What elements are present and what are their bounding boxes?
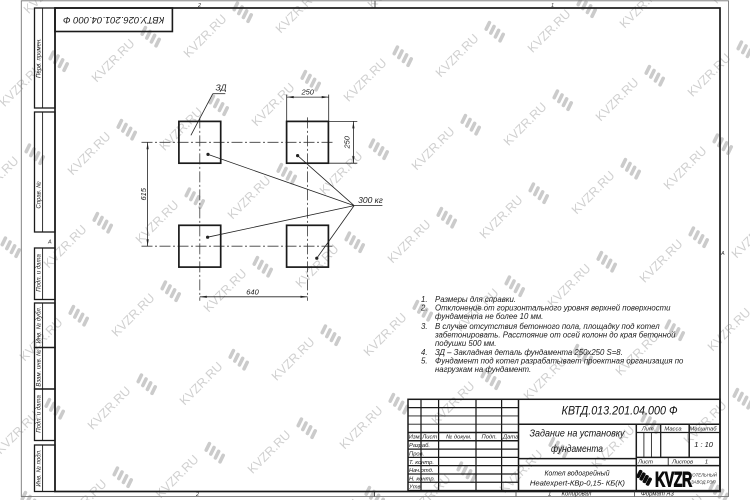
svg-text:Взам. инв. №: Взам. инв. № (36, 349, 43, 387)
svg-text:КВТД.013.201.04.000 Ф: КВТД.013.201.04.000 Ф (562, 403, 678, 417)
svg-text:Лист: Лист (637, 460, 653, 466)
svg-text:ЗД – Закладная деталь фундамен: ЗД – Закладная деталь фундамента 250х250… (435, 348, 623, 357)
svg-text:1: 1 (548, 492, 551, 498)
svg-text:Справ. №: Справ. № (36, 181, 43, 209)
svg-text:Подп.: Подп. (482, 435, 497, 441)
svg-text:2.: 2. (420, 304, 428, 313)
svg-text:Масштаб: Масштаб (689, 427, 717, 433)
svg-text:Подп. и дата: Подп. и дата (37, 254, 43, 292)
svg-text:250: 250 (300, 88, 314, 97)
svg-text:КОТЕЛЬНЫЙ: КОТЕЛЬНЫЙ (690, 472, 718, 477)
svg-text:Разраб.: Разраб. (409, 443, 430, 449)
svg-text:Heatexpert-КВр-0,15- КБ(К): Heatexpert-КВр-0,15- КБ(К) (530, 478, 625, 487)
svg-text:ЗАВОД РЭП: ЗАВОД РЭП (691, 479, 717, 484)
svg-text:Инв. № дубл.: Инв. № дубл. (36, 307, 43, 344)
svg-text:KVZR: KVZR (655, 467, 692, 491)
svg-text:Формат А3: Формат А3 (641, 492, 674, 498)
svg-text:Листов: Листов (671, 460, 693, 466)
svg-text:Копировал: Копировал (562, 492, 592, 498)
svg-text:615: 615 (139, 187, 148, 200)
svg-text:Инв. № подл.: Инв. № подл. (36, 449, 43, 486)
svg-text:Изм.: Изм. (409, 435, 421, 441)
svg-text:Подп. и дата: Подп. и дата (37, 395, 43, 433)
svg-text:№ докум.: № докум. (446, 435, 472, 441)
svg-text:нагрузкам на фундамент.: нагрузкам на фундамент. (435, 365, 531, 374)
svg-text:Масса: Масса (664, 427, 682, 433)
svg-text:Нач.отд.: Нач.отд. (409, 468, 433, 474)
svg-text:Дата: Дата (502, 435, 519, 441)
svg-text:5.: 5. (421, 357, 428, 366)
svg-text:4.: 4. (421, 348, 428, 357)
svg-text:КВТУ.026.201.04.000 Ф: КВТУ.026.201.04.000 Ф (63, 14, 165, 25)
svg-text:Пров.: Пров. (409, 452, 424, 458)
svg-text:подушки 500 мм.: подушки 500 мм. (435, 339, 496, 348)
svg-text:фундамента не более 10 мм.: фундамента не более 10 мм. (435, 312, 543, 321)
svg-text:A: A (47, 240, 52, 246)
svg-text:300 кг: 300 кг (358, 195, 383, 205)
svg-text:Лист: Лист (421, 435, 437, 441)
svg-text:ЗД: ЗД (216, 83, 227, 93)
svg-text:2: 2 (195, 492, 199, 498)
svg-text:1 : 10: 1 : 10 (694, 440, 714, 449)
svg-text:3.: 3. (421, 322, 428, 331)
svg-text:Утв.: Утв. (408, 485, 422, 491)
svg-text:Котел водогрейный: Котел водогрейный (545, 469, 611, 478)
svg-text:Перв. примен.: Перв. примен. (37, 38, 43, 78)
svg-text:Т. контр.: Т. контр. (409, 460, 434, 466)
svg-text:Н. контр.: Н. контр. (409, 476, 435, 482)
svg-text:Лит.: Лит. (641, 427, 656, 433)
svg-text:фундамента: фундамента (551, 444, 603, 455)
svg-text:Задание на установку: Задание на установку (530, 429, 626, 440)
svg-text:640: 640 (246, 287, 259, 296)
svg-text:250: 250 (343, 135, 352, 149)
svg-text:1: 1 (705, 460, 708, 466)
